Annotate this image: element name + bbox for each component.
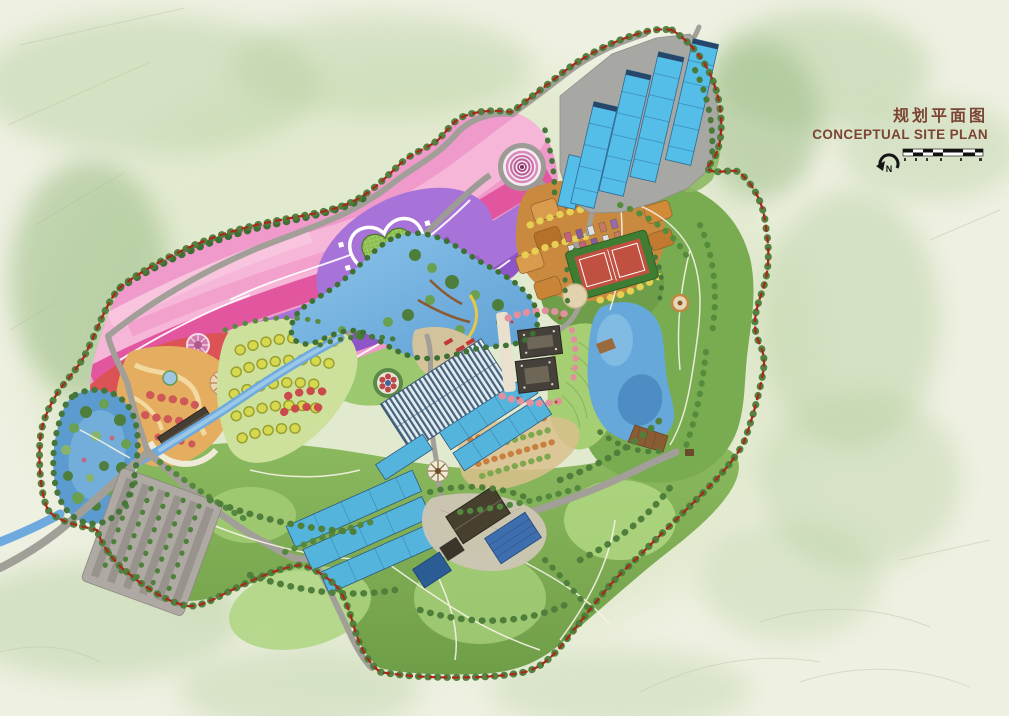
- spiral-plaza: [503, 148, 541, 186]
- site-plan-canvas: 规划平面图 CONCEPTUAL SITE PLAN N: [0, 0, 1009, 716]
- court-plaza: [563, 284, 587, 308]
- plan-title-en: CONCEPTUAL SITE PLAN: [812, 127, 988, 142]
- plan-title-zh: 规划平面图: [893, 106, 988, 125]
- hilltop-pavilion: [672, 295, 688, 311]
- windmill-plaza: [428, 461, 449, 482]
- forest-hut: [685, 449, 694, 456]
- north-label: N: [886, 164, 893, 174]
- plan-rendering: 规划平面图 CONCEPTUAL SITE PLAN N: [0, 0, 1009, 716]
